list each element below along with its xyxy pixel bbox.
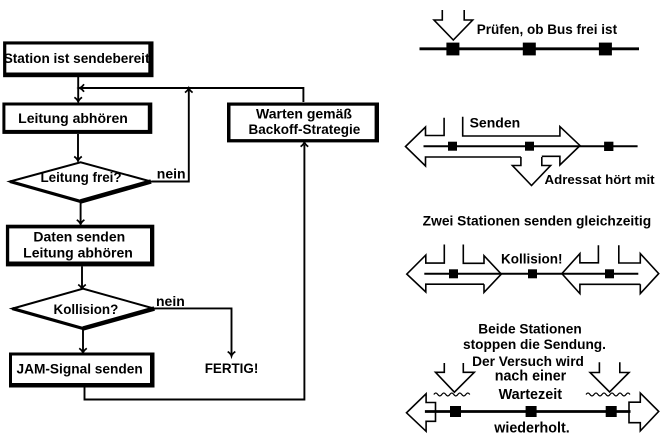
svg-text:Beide Stationen: Beide Stationen [478,322,581,337]
svg-text:nach einer: nach einer [495,368,567,384]
svg-text:nein: nein [157,166,186,182]
svg-text:Der Versuch wird: Der Versuch wird [472,354,584,369]
svg-text:Leitung frei?: Leitung frei? [40,170,121,185]
svg-text:FERTIG!: FERTIG! [205,361,259,376]
svg-text:Leitung abhören: Leitung abhören [18,110,128,126]
svg-text:stoppen die Sendung.: stoppen die Sendung. [463,337,606,352]
svg-text:nein: nein [156,293,185,309]
svg-text:Backoff-Strategie: Backoff-Strategie [249,122,361,137]
svg-text:Senden: Senden [470,115,521,131]
svg-text:Wartezeit: Wartezeit [499,387,563,403]
svg-text:Kollision?: Kollision? [54,302,119,317]
svg-text:Kollision!: Kollision! [501,251,563,266]
svg-text:Leitung abhören: Leitung abhören [23,245,133,261]
svg-text:Zwei Stationen senden gleichze: Zwei Stationen senden gleichzeitig [423,214,651,229]
svg-text:wiederholt.: wiederholt. [493,420,569,436]
svg-text:Warten gemäß: Warten gemäß [256,105,352,121]
svg-text:Station ist sendebereit: Station ist sendebereit [4,51,150,66]
svg-text:Prüfen, ob Bus frei ist: Prüfen, ob Bus frei ist [477,22,618,37]
svg-text:Adressat hört mit: Adressat hört mit [545,172,656,187]
svg-text:JAM-Signal senden: JAM-Signal senden [16,362,142,377]
svg-text:Daten senden: Daten senden [33,229,125,245]
